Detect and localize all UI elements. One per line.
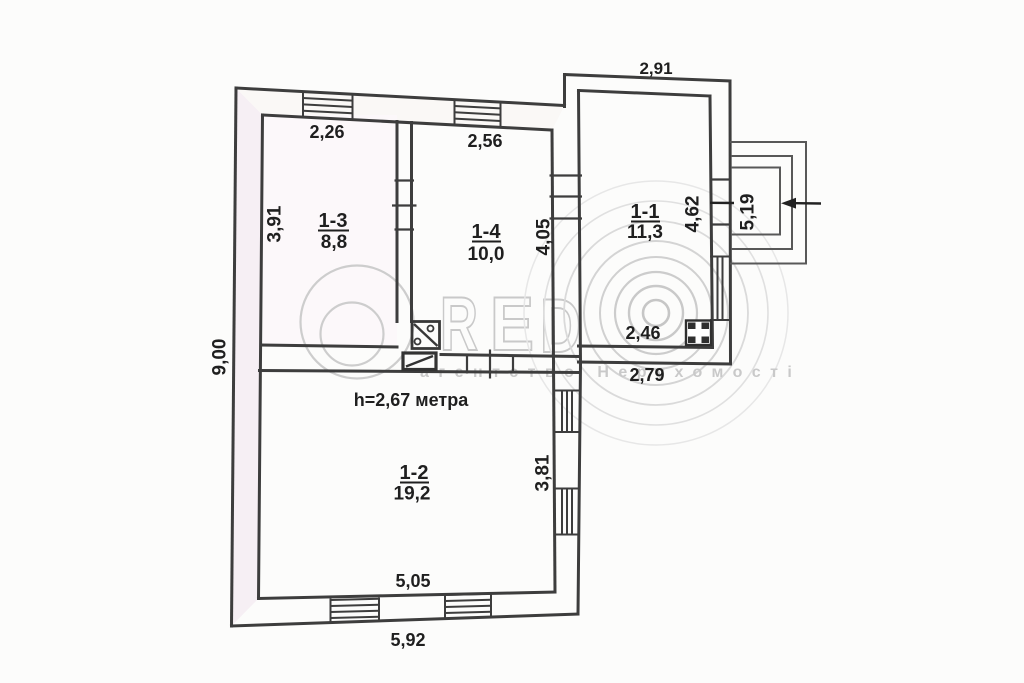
svg-text:9,00: 9,00: [210, 339, 231, 376]
svg-text:4,62: 4,62: [683, 196, 704, 233]
svg-text:1-2: 1-2: [400, 462, 429, 484]
svg-text:4,05: 4,05: [534, 218, 555, 255]
svg-text:11,3: 11,3: [627, 222, 663, 243]
svg-text:1-1: 1-1: [631, 201, 660, 223]
svg-text:19,2: 19,2: [394, 484, 431, 505]
svg-text:2,46: 2,46: [625, 323, 660, 343]
svg-text:5,92: 5,92: [390, 630, 425, 650]
svg-text:5,19: 5,19: [738, 194, 759, 231]
svg-text:2,79: 2,79: [629, 365, 664, 385]
svg-text:8,8: 8,8: [321, 232, 347, 253]
svg-text:3,91: 3,91: [265, 205, 286, 242]
svg-text:1-4: 1-4: [472, 221, 502, 243]
svg-text:10,0: 10,0: [468, 244, 505, 265]
svg-text:2,26: 2,26: [309, 122, 344, 142]
svg-text:3,81: 3,81: [533, 454, 554, 491]
svg-text:h=2,67 метра: h=2,67 метра: [354, 390, 469, 410]
svg-text:2,56: 2,56: [467, 131, 502, 151]
svg-text:5,05: 5,05: [395, 571, 430, 591]
svg-text:2,91: 2,91: [639, 59, 672, 78]
svg-text:1-3: 1-3: [319, 210, 348, 232]
